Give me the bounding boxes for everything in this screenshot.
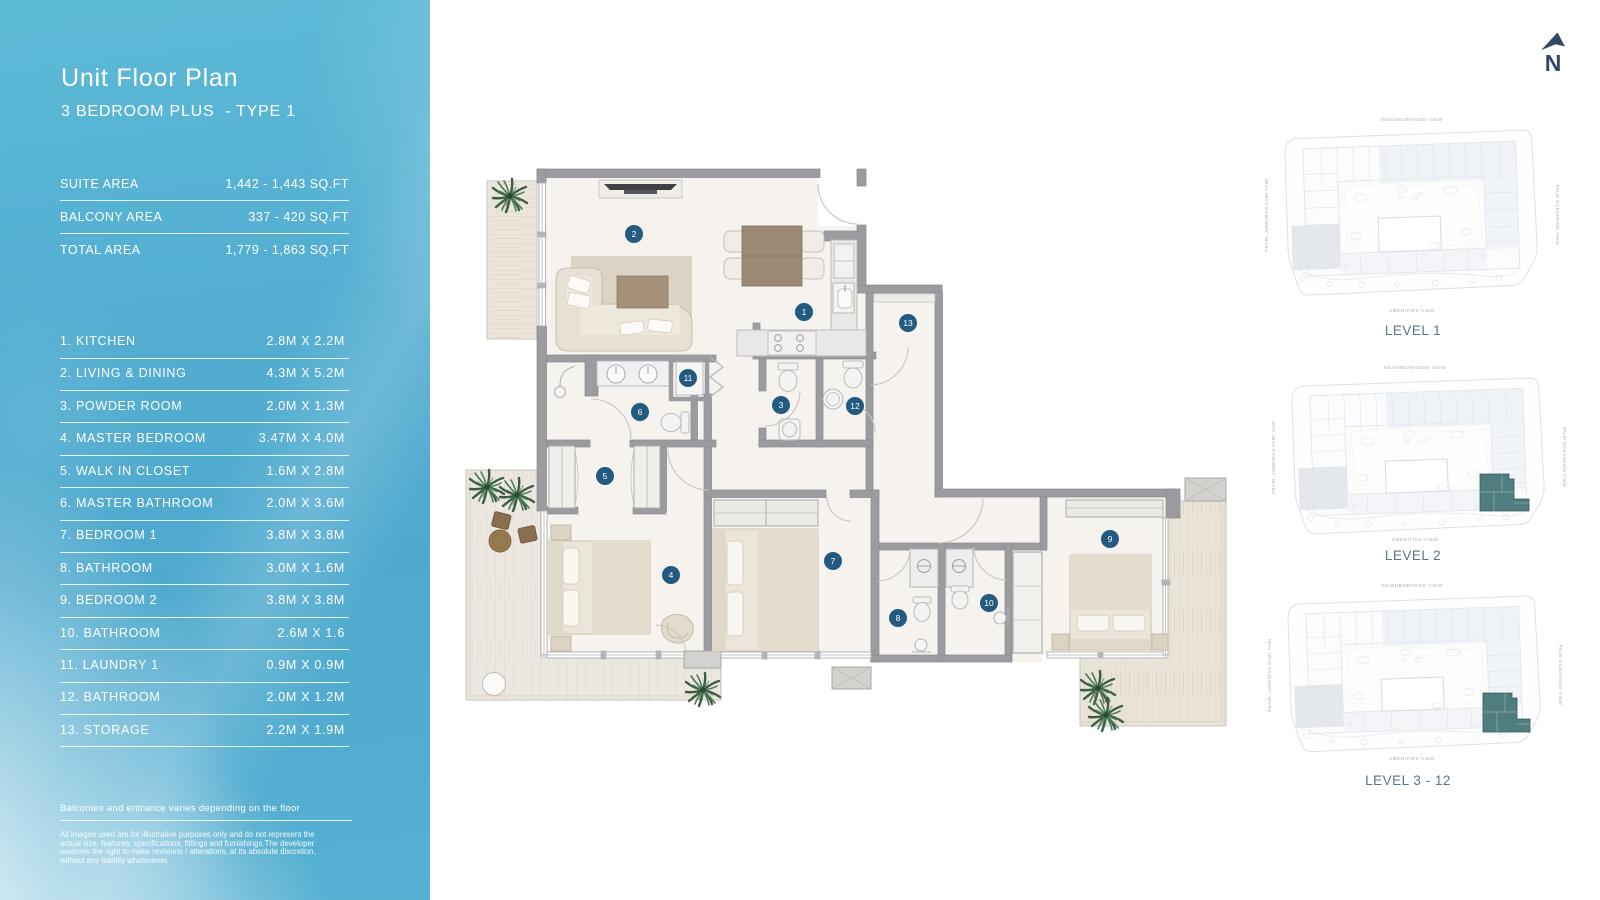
svg-text:NEIGHBORHOOD VIEW: NEIGHBORHOOD VIEW <box>1381 583 1443 588</box>
svg-text:8: 8 <box>896 613 901 623</box>
svg-text:PALM OCEANSIDE VIEW: PALM OCEANSIDE VIEW <box>1555 185 1560 246</box>
svg-text:PEARL JUMEIRAH SAMI YAMI: PEARL JUMEIRAH SAMI YAMI <box>1271 420 1276 493</box>
svg-text:5: 5 <box>603 471 608 481</box>
svg-text:PALM OCEANSIDE VIEW: PALM OCEANSIDE VIEW <box>1562 427 1567 488</box>
svg-text:PEARL JUMEIRAH SAMI YAMI: PEARL JUMEIRAH SAMI YAMI <box>1264 178 1269 251</box>
svg-text:NEIGHBORHOOD VIEW: NEIGHBORHOOD VIEW <box>1384 365 1446 370</box>
svg-text:PEARL JUMEIRAH SAMI YAMI: PEARL JUMEIRAH SAMI YAMI <box>1267 638 1272 711</box>
svg-text:13: 13 <box>903 318 913 328</box>
svg-text:AMENITIES VIEW: AMENITIES VIEW <box>1392 537 1438 542</box>
svg-text:AMENITIES VIEW: AMENITIES VIEW <box>1389 308 1435 313</box>
svg-text:LEVEL 3 - 12: LEVEL 3 - 12 <box>1365 773 1451 788</box>
svg-text:6: 6 <box>638 407 643 417</box>
svg-text:LEVEL 1: LEVEL 1 <box>1385 323 1441 338</box>
svg-text:12: 12 <box>850 401 860 411</box>
svg-text:11: 11 <box>684 373 693 383</box>
svg-text:4: 4 <box>669 570 674 580</box>
svg-text:9: 9 <box>1108 534 1113 544</box>
svg-text:7: 7 <box>831 556 836 566</box>
svg-text:2: 2 <box>632 229 637 239</box>
svg-text:1: 1 <box>802 307 807 317</box>
svg-text:AMENITIES VIEW: AMENITIES VIEW <box>1389 756 1435 761</box>
svg-text:PALM OCEANSIDE VIEW: PALM OCEANSIDE VIEW <box>1558 645 1563 706</box>
svg-text:LEVEL 2: LEVEL 2 <box>1385 548 1441 563</box>
svg-text:NEIGHBORHOOD VIEW: NEIGHBORHOOD VIEW <box>1381 117 1443 122</box>
svg-text:N: N <box>1545 50 1562 76</box>
svg-text:3: 3 <box>779 400 784 410</box>
svg-text:10: 10 <box>984 598 994 608</box>
